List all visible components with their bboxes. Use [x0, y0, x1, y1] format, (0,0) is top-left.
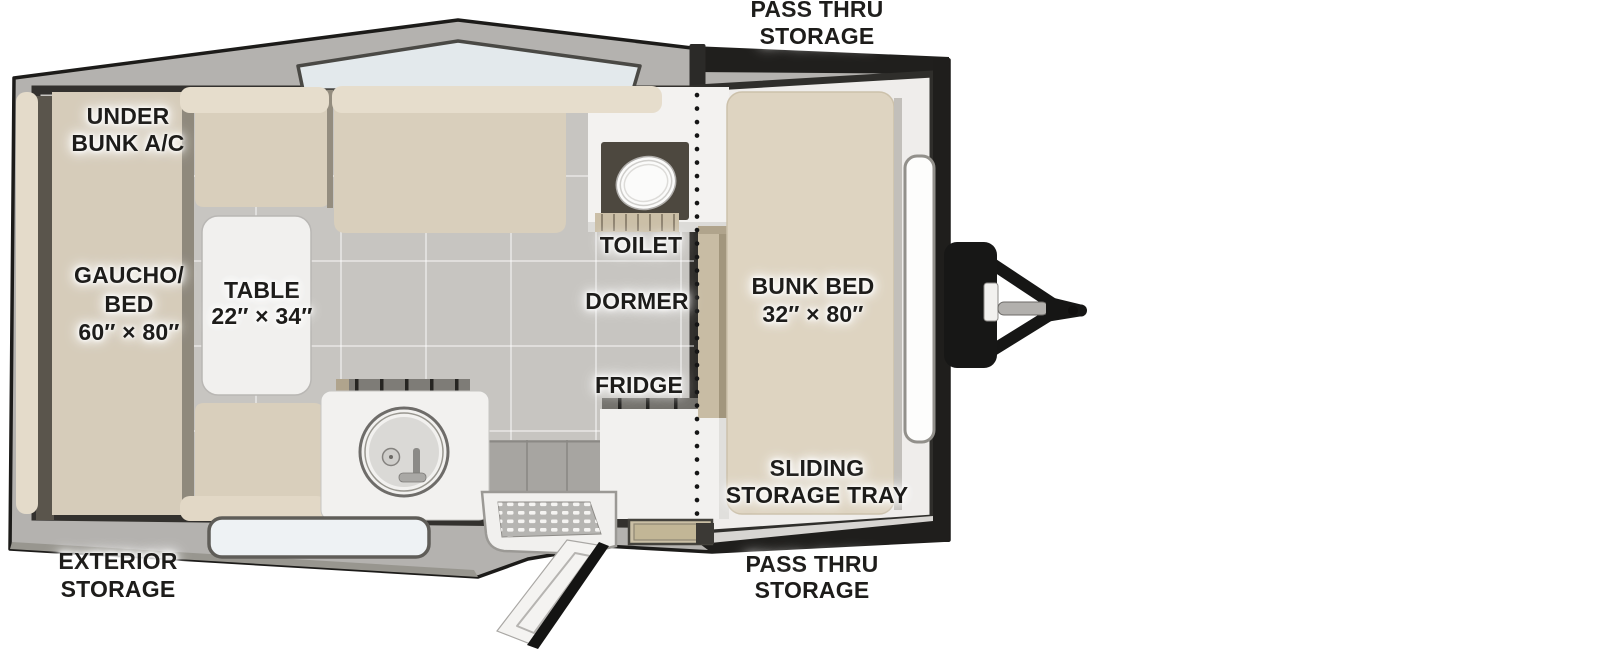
tongue-jack	[984, 283, 998, 321]
label-line: 22″ × 34″	[211, 303, 312, 329]
label-line: STORAGE	[755, 577, 870, 603]
sink-unit	[321, 391, 489, 520]
label-line: EXTERIOR	[58, 548, 177, 574]
hitch-ball	[1068, 306, 1078, 316]
label-line: STORAGE	[61, 576, 176, 602]
label-fridge: FRIDGE	[595, 372, 683, 398]
label-line: GAUCHO/	[74, 262, 184, 288]
front-roof-bar	[692, 46, 949, 74]
bottom-bench	[180, 403, 327, 521]
entry-step-grate	[498, 502, 601, 537]
top-bench-bolster-left	[180, 87, 329, 113]
label-line: UNDER	[87, 103, 170, 129]
label-line: BED	[104, 291, 153, 317]
entry-step-well	[482, 492, 616, 553]
label-line: 60″ × 80″	[78, 319, 179, 345]
tongue-pin	[998, 302, 1048, 315]
dormer-floor-strip	[698, 226, 729, 418]
label-dormer: DORMER	[585, 288, 688, 314]
front-wall-window	[905, 156, 934, 442]
label-line: PASS THRU	[751, 0, 884, 22]
label-line: TABLE	[224, 277, 300, 303]
label-line: PASS THRU	[746, 551, 879, 577]
label-line: BUNK BED	[752, 273, 875, 299]
label-line: SLIDING	[770, 455, 865, 481]
label-line: BUNK A/C	[71, 130, 184, 156]
pass-thru-divider	[690, 44, 706, 90]
bed-side-gap	[36, 96, 54, 520]
exterior-step	[629, 520, 714, 544]
label-line: STORAGE TRAY	[726, 482, 909, 508]
label-line: 32″ × 80″	[762, 301, 863, 327]
label-line: STORAGE	[760, 23, 875, 49]
bed-bolster	[16, 92, 38, 514]
label-toilet: TOILET	[600, 232, 683, 258]
dinette-window	[209, 518, 429, 557]
floorplan-canvas: PASS THRU STORAGE UNDER BUNK A/C GAUCHO/…	[0, 0, 1600, 649]
hitch-assembly	[944, 242, 1087, 368]
bunk-floor-seam	[894, 98, 902, 510]
top-bench-bolster-right	[332, 86, 662, 113]
